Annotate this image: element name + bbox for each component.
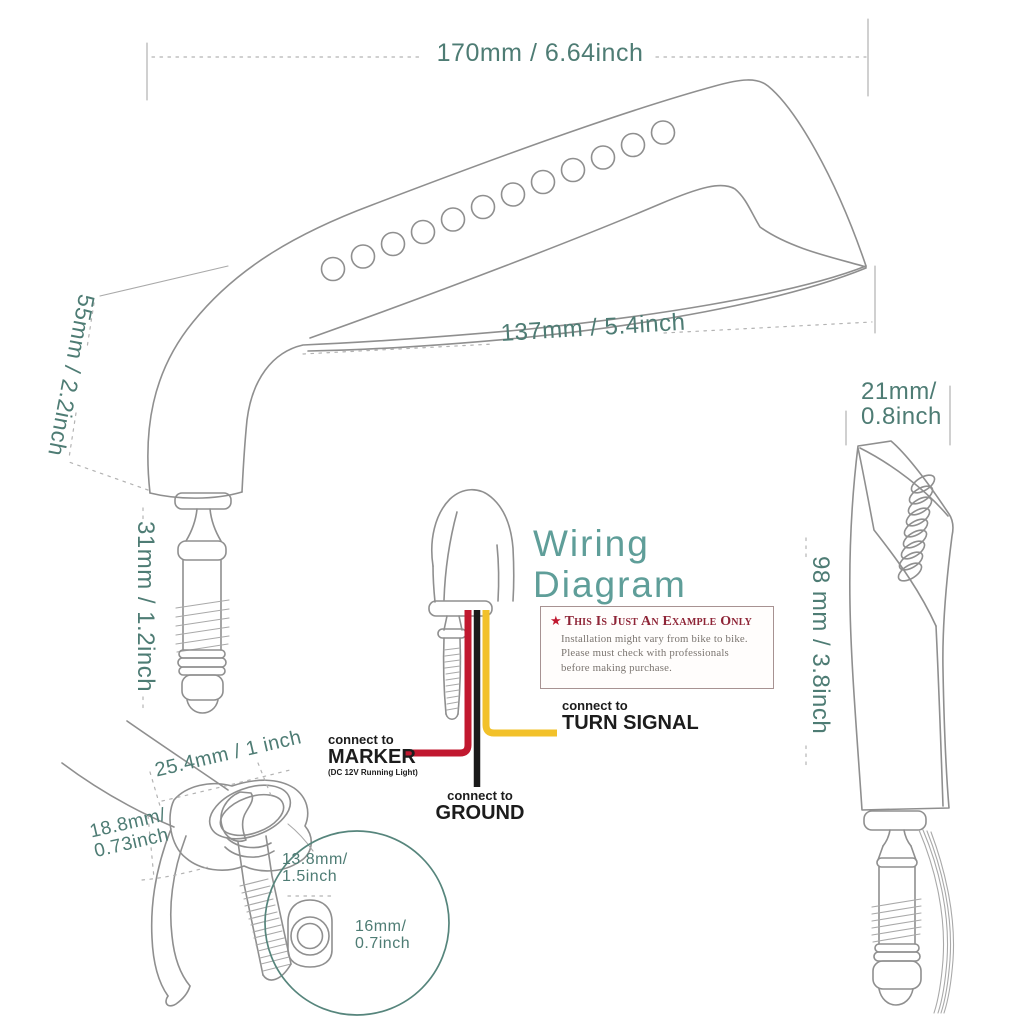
ground-wire-label: connect to GROUND: [434, 789, 526, 825]
dim-mount-bolt-line2: 0.7inch: [355, 936, 410, 953]
diagram-line-art: [0, 0, 1024, 1024]
example-note-box: ★ This Is Just An Example Only Installat…: [540, 606, 774, 689]
turn-signal-label: TURN SIGNAL: [562, 713, 699, 735]
turn-signal-wire-label: connect to TURN SIGNAL: [562, 699, 699, 735]
side-view-drawing: [850, 441, 954, 1013]
dim-head-depth: 21mm/ 0.8inch: [861, 379, 942, 429]
dim-head-depth-line2: 0.8inch: [861, 404, 942, 429]
marker-prefix: connect to: [328, 733, 418, 747]
mirror-product-diagram: 170mm / 6.64inch 55mm / 2.2inch 137mm / …: [0, 0, 1024, 1024]
ground-prefix: connect to: [434, 789, 526, 803]
front-mount-bolt: [175, 493, 231, 713]
note-title: This Is Just An Example Only: [565, 614, 752, 630]
mirror-vent-holes: [322, 121, 675, 281]
note-body-line3: before making purchase.: [561, 661, 767, 675]
marker-wire: [404, 610, 468, 753]
dim-head-depth-line1: 21mm/: [861, 379, 942, 404]
dim-mount-hole: 13.8mm/ 1.5inch: [282, 852, 348, 886]
dim-head-height: 98 mm / 3.8inch: [808, 556, 833, 734]
side-wire-bundle: [919, 830, 954, 1013]
note-body-line2: Please must check with professionals: [561, 646, 767, 660]
marker-label: MARKER: [328, 747, 418, 769]
dim-mount-hole-line2: 1.5inch: [282, 869, 348, 886]
dim-mount-bolt-line1: 16mm/: [355, 919, 410, 936]
star-icon: ★: [550, 613, 562, 629]
note-body: Installation might vary from bike to bik…: [561, 632, 767, 675]
wiring-title-line2: Diagram: [533, 564, 687, 605]
marker-sub-label: (DC 12V Running Light): [328, 769, 418, 778]
turn-signal-prefix: connect to: [562, 699, 699, 713]
marker-wire-label: connect to MARKER (DC 12V Running Light): [328, 733, 418, 777]
note-body-line1: Installation might vary from bike to bik…: [561, 632, 767, 646]
dim-mirror-width: 170mm / 6.64inch: [424, 40, 656, 66]
ground-label: GROUND: [434, 803, 526, 825]
dim-mount-bolt: 16mm/ 0.7inch: [355, 919, 410, 953]
wiring-title-line1: Wiring: [533, 523, 687, 564]
wiring-diagram-title: Wiring Diagram: [533, 523, 687, 606]
dim-bolt-length: 31mm / 1.2inch: [133, 521, 158, 692]
wires: [404, 610, 557, 787]
dim-mount-hole-line1: 13.8mm/: [282, 852, 348, 869]
side-mount-bolt: [864, 811, 926, 1005]
